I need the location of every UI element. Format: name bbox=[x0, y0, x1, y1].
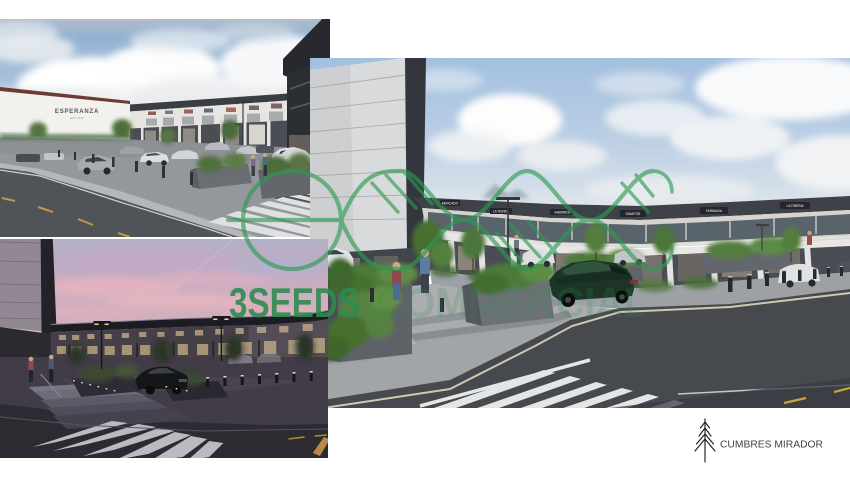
svg-text:MERCADO: MERCADO bbox=[442, 202, 459, 206]
svg-text:CUMBRES MIRADOR: CUMBRES MIRADOR bbox=[720, 439, 823, 451]
svg-text:GAMITOS: GAMITOS bbox=[626, 212, 641, 216]
svg-text:SABORES: SABORES bbox=[554, 211, 569, 215]
svg-text:EST. 1972: EST. 1972 bbox=[70, 116, 84, 120]
svg-text:LICORERIA: LICORERIA bbox=[786, 204, 804, 208]
svg-text:ESPERANZA: ESPERANZA bbox=[55, 109, 99, 115]
svg-text:FARMACIA: FARMACIA bbox=[706, 209, 723, 213]
